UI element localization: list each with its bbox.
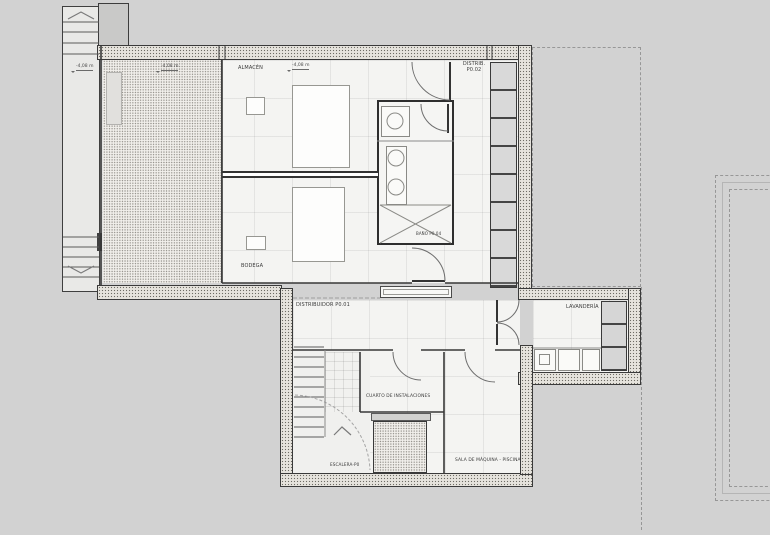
gravel-pier bbox=[106, 72, 122, 125]
lintel bbox=[371, 413, 431, 421]
washer-unit bbox=[558, 349, 580, 371]
wall-bottom-lower bbox=[280, 473, 533, 487]
room-label-bano: BAÑO P0.04 bbox=[416, 231, 441, 237]
hall-bench-inner-line bbox=[383, 289, 449, 295]
wall-top bbox=[97, 45, 532, 60]
upper-floor-overhang-outline bbox=[532, 47, 641, 287]
shelving-column bbox=[490, 62, 517, 288]
storage-table-upper bbox=[292, 85, 350, 168]
room-label-distrib2-line2: P0.02 bbox=[461, 68, 487, 74]
room-label-escalera: ESCALERA-P0 bbox=[330, 462, 359, 468]
room-label-sala: SALA DE MÁQUINA - PISCINA bbox=[455, 458, 521, 464]
wall-laundry-top bbox=[518, 288, 641, 300]
bathroom-counter-top bbox=[381, 106, 410, 137]
laundry-sink bbox=[534, 349, 556, 371]
wall-laundry-right bbox=[628, 288, 641, 385]
exterior-stair-strip bbox=[62, 6, 100, 292]
side-table-upper bbox=[246, 97, 265, 115]
level-marker: -4,08 m bbox=[292, 63, 309, 70]
room-label-almacen: ALMACÉN bbox=[238, 66, 263, 72]
pool-outline-inner bbox=[729, 189, 770, 487]
wall-laundry-bottom bbox=[518, 372, 641, 385]
floor-plan-canvas: ALMACÉN DISTRIB. P0.02 BODEGA BAÑO P0.04… bbox=[0, 0, 770, 535]
wall-right-upper bbox=[518, 45, 532, 300]
room-label-lavanderia: LAVANDERÍA bbox=[566, 305, 599, 311]
side-table-lower bbox=[246, 236, 266, 250]
corner-wall-block bbox=[98, 3, 129, 46]
wall-left-lower bbox=[280, 288, 293, 487]
wall-mid-right bbox=[520, 345, 533, 475]
storage-table-lower bbox=[292, 187, 345, 262]
laundry-sink-basin bbox=[539, 354, 550, 365]
dryer-unit bbox=[582, 349, 600, 371]
property-dashed-line bbox=[641, 287, 642, 530]
room-label-distribuidor1: DISTRIBUIDOR P0.01 bbox=[296, 303, 350, 309]
partition-wall bbox=[222, 171, 378, 178]
stair-upper-flight-grid bbox=[325, 352, 360, 412]
level-marker: -4,08 m bbox=[76, 64, 93, 71]
pit-stipple-square bbox=[373, 421, 427, 473]
room-label-bodega: BODEGA bbox=[241, 264, 263, 270]
hall-bench bbox=[380, 286, 452, 298]
room-label-distrib2: DISTRIB. P0.02 bbox=[461, 62, 487, 73]
bathroom-vanity bbox=[386, 146, 407, 205]
laundry-cabinet-column bbox=[601, 301, 627, 371]
level-marker: -4,08 m bbox=[161, 64, 178, 71]
room-label-cuarto: CUARTO DE INSTALACIONES bbox=[366, 394, 430, 400]
wall-bottom-upper-left bbox=[97, 285, 282, 300]
